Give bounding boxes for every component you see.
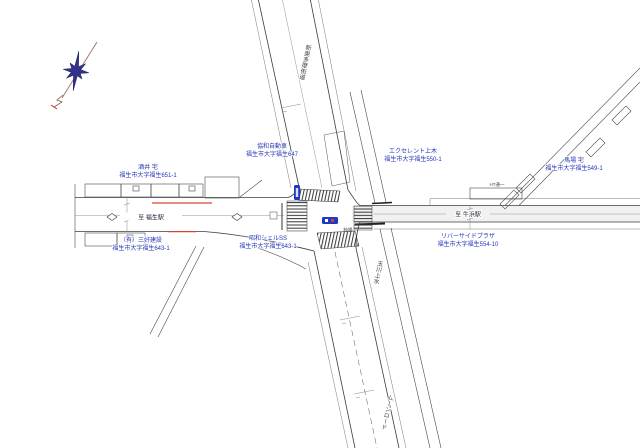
label-name: （有）三好建設 <box>120 236 162 244</box>
building-outline <box>324 131 350 186</box>
crosswalk-south <box>317 231 359 249</box>
traffic-signal-icon <box>322 217 338 224</box>
building-label: 昭和シェルSS 福生市大字福生643-1 <box>239 234 297 250</box>
label-name: 馬場 宅 <box>564 156 584 164</box>
crosswalk-ahead-diamond-icon <box>107 214 117 221</box>
north-compass-icon <box>51 42 97 109</box>
map-canvas: 至 福生駅 <box>0 0 640 448</box>
label-name: 酒井 宅 <box>138 163 158 171</box>
west-road-buildings <box>85 177 262 246</box>
label-name: リバーサイドプラザ <box>441 233 495 240</box>
compass-tail <box>54 95 63 107</box>
label-address: 福生市大字福生643-1 <box>239 242 297 250</box>
label-address: 福生市大字福生554-10 <box>438 240 499 248</box>
building-label: エクセレント上木 福生市大字福生550-1 <box>384 147 442 163</box>
east-road-surface <box>352 206 640 223</box>
north-road: 新奥多摩街道 <box>251 0 360 206</box>
traffic-island-box <box>270 212 277 219</box>
road-destination-label: 至 福生駅 <box>138 214 164 222</box>
label-address: 福生市大字福生651-1 <box>119 171 177 179</box>
building-label: 酒井 宅 福生市大字福生651-1 <box>119 163 177 179</box>
crosswalk-west <box>287 201 307 231</box>
building-strip <box>470 188 522 199</box>
building-label: リバーサイドプラザ 福生市大字福生554-10 <box>438 233 499 248</box>
road-name-label: 新奥多摩街道 <box>297 43 312 82</box>
crosswalk-ahead-diamond-icon <box>232 214 242 221</box>
building-label: （有）三好建設 福生市大字福生643-1 <box>112 236 170 252</box>
bridge-parapet <box>372 203 392 204</box>
road-destination-label: 至 牛浜駅 <box>455 211 481 219</box>
label-address: 福生市大字福生643-1 <box>112 244 170 252</box>
label-name: 昭和シェルSS <box>249 234 287 242</box>
crosswalk-north <box>298 189 340 202</box>
label-address: 福生市大字福生647 <box>246 150 299 158</box>
southwest-branch-road <box>150 246 204 337</box>
station-marker <box>354 390 374 398</box>
crosswalk-east <box>354 206 372 230</box>
building-note-label: HT通一 <box>490 181 505 188</box>
label-address: 福生市大字福生550-1 <box>384 155 442 163</box>
south-road: ムーンロード <box>308 222 406 448</box>
east-road: 至 牛浜駅 HT通一 <box>360 181 640 229</box>
label-name: エクセレント上木 <box>389 147 437 155</box>
canal-name-label: 玉川上水 <box>372 260 384 285</box>
station-marker <box>281 104 301 112</box>
signal-lens <box>296 188 298 197</box>
label-address: 福生市大字福生549-1 <box>545 164 603 172</box>
building-label: 馬場 宅 福生市大字福生549-1 <box>545 156 603 172</box>
compass-star <box>63 51 89 91</box>
label-name: 協和自動車 <box>257 142 287 150</box>
